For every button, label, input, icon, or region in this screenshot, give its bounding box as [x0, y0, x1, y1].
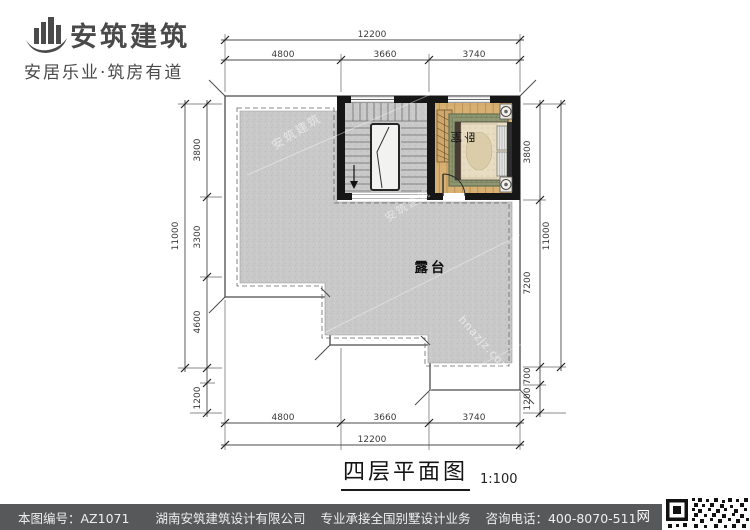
logo-building-icon	[24, 14, 70, 54]
dim-bottom-seg: 3660	[374, 413, 397, 423]
nightstand-top	[500, 104, 512, 119]
qr-code	[662, 496, 750, 530]
title-block: 四层平面图 1:100	[341, 454, 517, 491]
dim-left-seg: 3300	[193, 225, 203, 248]
dim-right-seg: 700	[523, 367, 533, 384]
dim-left-seg: 1200	[193, 386, 203, 409]
dim-right-seg: 1200	[523, 387, 533, 410]
drawing-sheet: 安筑建筑 安居乐业·筑房有道	[0, 0, 750, 530]
drawing-scale: 1:100	[480, 472, 517, 487]
dim-right-total: 11000	[542, 221, 552, 250]
drawing-number: 本图编号：AZ1071	[18, 508, 129, 527]
bedroom-area: 卧室	[435, 103, 512, 196]
dim-top-seg: 3660	[374, 50, 397, 60]
dim-top-seg: 3740	[463, 50, 486, 60]
logo-tagline: 安居乐业·筑房有道	[24, 58, 190, 83]
dim-left-seg: 3800	[193, 138, 203, 161]
stair-void-railing	[371, 124, 399, 190]
qr-pattern	[662, 496, 750, 530]
dim-bottom-seg: 3740	[463, 413, 486, 423]
nightstand-bottom	[500, 177, 512, 192]
company-name: 湖南安筑建筑设计有限公司	[155, 508, 305, 527]
bedroom-label: 卧室	[449, 130, 476, 144]
dim-bottom-total: 12200	[358, 435, 387, 445]
stairwell	[345, 103, 427, 193]
headboard	[507, 122, 512, 180]
dim-top-seg: 4800	[272, 50, 295, 60]
dim-left-seg: 4600	[193, 310, 203, 333]
service-text: 专业承接全国别墅设计业务	[320, 508, 470, 527]
logo-name: 安筑建筑	[70, 15, 190, 54]
net-label: 网	[637, 505, 651, 525]
dim-bottom-seg: 4800	[272, 413, 295, 423]
window-bedroom	[448, 96, 490, 103]
dim-right-seg: 3800	[523, 140, 533, 163]
phone-number: 咨询电话：400-8070-511	[485, 508, 636, 527]
window-stair	[351, 96, 394, 103]
logo: 安筑建筑 安居乐业·筑房有道	[24, 14, 190, 83]
drawing-title: 四层平面图	[341, 454, 470, 491]
dim-top-total: 12200	[358, 30, 387, 40]
dim-left-total: 11000	[171, 221, 181, 250]
dim-right-seg: 7200	[523, 271, 533, 294]
